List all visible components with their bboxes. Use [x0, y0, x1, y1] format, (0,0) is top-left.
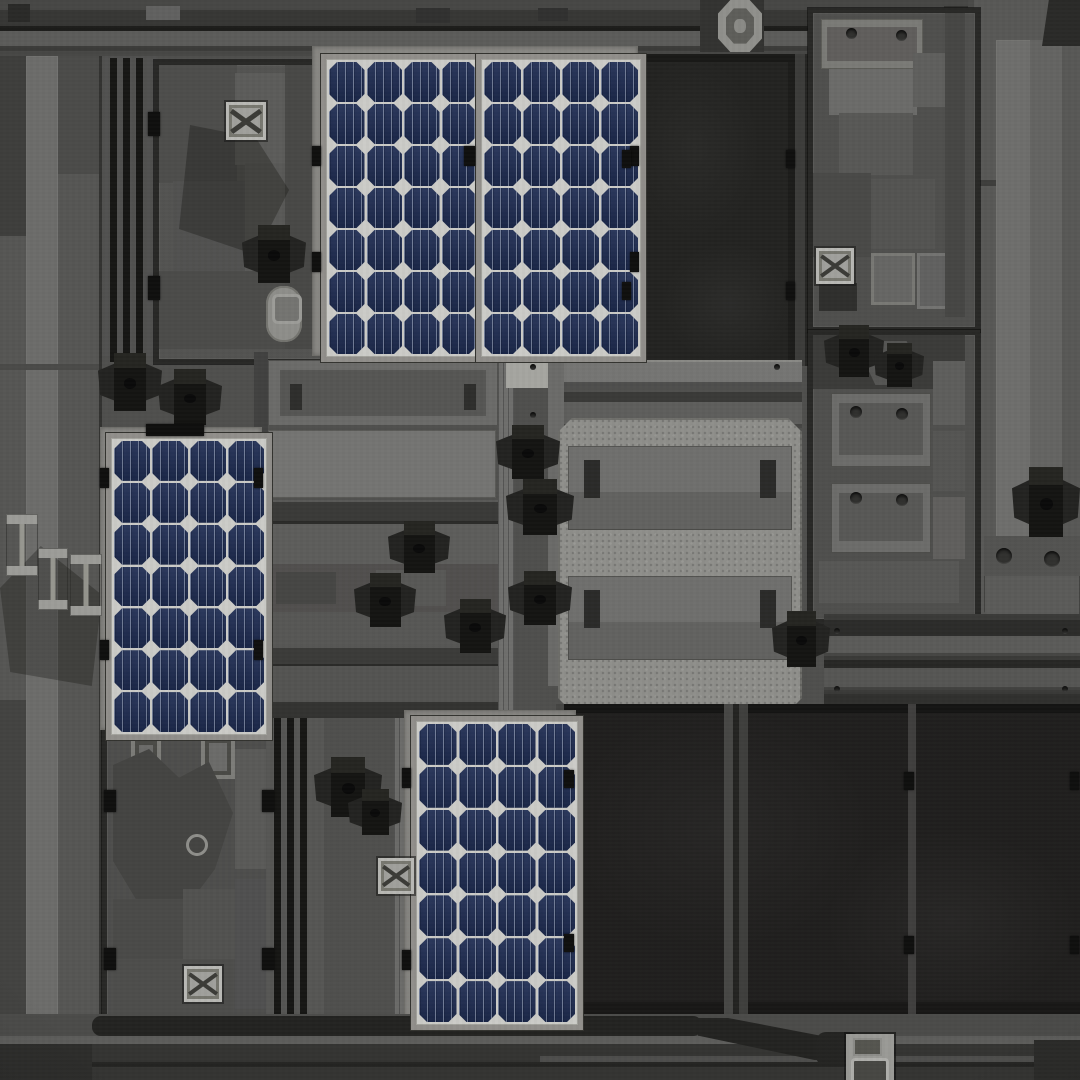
solar-cell — [601, 314, 638, 354]
machine-checker — [853, 1038, 883, 1056]
bolt — [834, 628, 840, 634]
solar-cell — [601, 272, 638, 312]
solar-cell — [190, 567, 226, 607]
machine-center — [734, 19, 746, 34]
solar-cell — [442, 62, 478, 102]
bolt — [996, 548, 1012, 564]
solar-cell — [562, 188, 599, 228]
solar-cell — [404, 230, 440, 270]
solar-cell — [459, 724, 497, 765]
solar-cell — [329, 230, 365, 270]
solar-cell — [329, 62, 365, 102]
solar-cell — [523, 314, 560, 354]
bolt — [850, 406, 862, 418]
mount-clip — [148, 276, 160, 300]
bolt — [530, 412, 536, 418]
mount-clip — [100, 468, 109, 488]
solar-cell — [498, 767, 536, 808]
vent-hole — [796, 636, 807, 646]
solar-cell — [152, 441, 188, 481]
roof-vent — [388, 520, 450, 574]
solar-cell — [562, 62, 599, 102]
roof-vent — [354, 572, 416, 628]
solar-cell — [523, 146, 560, 186]
solar-cell — [419, 724, 457, 765]
solar-cell — [228, 483, 264, 523]
solar-cell — [484, 104, 521, 144]
solar-cell — [190, 608, 226, 648]
solar-cell — [404, 272, 440, 312]
mount-clip — [564, 770, 574, 788]
solar-cell — [152, 483, 188, 523]
solar-cell — [498, 810, 536, 851]
solar-cell — [367, 314, 403, 354]
solar-cell — [442, 104, 478, 144]
solar-cell — [484, 146, 521, 186]
bolt — [1062, 686, 1068, 692]
vent-hole — [124, 378, 136, 388]
roof-vent — [506, 478, 574, 536]
machine-ring — [851, 1058, 890, 1080]
vent-hole — [268, 250, 280, 260]
solar-cell — [152, 525, 188, 565]
mount-clip — [1070, 936, 1079, 954]
solar-cell — [459, 853, 497, 894]
solar-panel-bottom-center — [411, 716, 583, 1030]
solar-cell — [538, 981, 576, 1022]
solar-cell — [114, 650, 150, 690]
bolt — [896, 30, 907, 41]
solar-cell — [419, 981, 457, 1022]
solar-cell — [329, 314, 365, 354]
solar-panel-mid-left — [106, 433, 272, 740]
mount-clip — [312, 252, 321, 272]
rooftop-texture — [0, 0, 1080, 1080]
solar-cell — [601, 188, 638, 228]
solar-cell — [442, 230, 478, 270]
mount-clip — [786, 150, 795, 168]
solar-cell — [114, 525, 150, 565]
solar-cell — [114, 483, 150, 523]
bolt — [186, 834, 208, 856]
rooftop-machine-octagon — [718, 0, 762, 52]
roof-vent — [348, 788, 402, 836]
solar-cell — [367, 272, 403, 312]
solar-cell — [498, 724, 536, 765]
solar-cell — [538, 810, 576, 851]
solar-cell — [562, 314, 599, 354]
solar-cell — [367, 188, 403, 228]
solar-cell — [114, 692, 150, 732]
mount-clip — [564, 934, 574, 952]
solar-cell — [498, 938, 536, 979]
solar-cell — [367, 104, 403, 144]
mount-clip — [622, 150, 631, 168]
solar-cell — [484, 230, 521, 270]
solar-cell — [228, 567, 264, 607]
solar-cell — [498, 981, 536, 1022]
solar-cell — [419, 810, 457, 851]
bolt — [1044, 551, 1060, 567]
solar-cell — [419, 767, 457, 808]
rooftop-machine-bottom — [846, 1034, 894, 1080]
solar-cell — [538, 895, 576, 936]
vent-hole — [895, 362, 905, 370]
roof-vent — [772, 610, 830, 668]
solar-cell — [419, 853, 457, 894]
solar-cell — [459, 895, 497, 936]
object-layer — [0, 0, 1080, 1080]
bolt — [774, 364, 780, 370]
mount-clip — [100, 640, 109, 660]
solar-cell — [523, 188, 560, 228]
roof-vent — [496, 424, 560, 480]
x-vent — [378, 858, 414, 894]
bolt — [896, 494, 908, 506]
mount-clip — [1070, 772, 1079, 790]
mount-clip — [262, 948, 274, 970]
solar-cell — [562, 104, 599, 144]
x-vent — [226, 102, 266, 140]
solar-cell — [190, 441, 226, 481]
solar-cell — [523, 104, 560, 144]
solar-cell — [538, 853, 576, 894]
solar-cell — [329, 272, 365, 312]
mount-clip — [312, 146, 321, 166]
roof-vent — [242, 224, 306, 284]
vent-hole — [849, 348, 860, 357]
solar-cell — [538, 724, 576, 765]
solar-cell — [484, 62, 521, 102]
mount-clip — [146, 424, 204, 436]
solar-cell — [404, 62, 440, 102]
solar-cell — [498, 895, 536, 936]
solar-cell — [459, 767, 497, 808]
solar-cell — [484, 314, 521, 354]
mount-clip — [402, 950, 411, 970]
solar-cell — [152, 608, 188, 648]
mount-clip — [104, 948, 116, 970]
bolt — [896, 408, 908, 420]
bolt — [850, 492, 862, 504]
solar-cell — [562, 146, 599, 186]
mount-clip — [904, 936, 914, 954]
mount-clip — [148, 112, 160, 136]
solar-cell — [329, 146, 365, 186]
mount-clip — [402, 768, 411, 788]
roof-vent — [98, 352, 162, 412]
solar-cell — [190, 692, 226, 732]
solar-cell — [459, 938, 497, 979]
solar-cell — [484, 188, 521, 228]
bolt — [834, 686, 840, 692]
solar-cell — [228, 525, 264, 565]
i-beam — [38, 548, 68, 610]
bolt — [530, 364, 536, 370]
solar-cell — [190, 650, 226, 690]
solar-cell — [562, 272, 599, 312]
solar-cell — [228, 692, 264, 732]
solar-cell — [329, 104, 365, 144]
roof-vent — [1012, 466, 1080, 538]
solar-cell — [459, 810, 497, 851]
mount-clip — [622, 282, 631, 300]
mount-clip — [262, 790, 274, 812]
i-beam — [70, 554, 102, 616]
roof-vent — [508, 570, 572, 626]
solar-cell — [419, 895, 457, 936]
solar-panel-top-right — [476, 54, 646, 362]
solar-cell — [523, 230, 560, 270]
solar-cell — [459, 981, 497, 1022]
solar-cell — [498, 853, 536, 894]
mount-clip — [786, 282, 795, 300]
mount-clip — [254, 468, 263, 488]
roof-vent — [158, 368, 222, 426]
mount-clip — [104, 790, 116, 812]
solar-cell — [601, 62, 638, 102]
bolt — [846, 28, 857, 39]
solar-cell — [367, 230, 403, 270]
solar-cell — [601, 104, 638, 144]
x-vent — [816, 248, 854, 284]
solar-cell — [442, 188, 478, 228]
vent-hole — [413, 544, 425, 553]
mount-clip — [904, 772, 914, 790]
solar-cell — [419, 938, 457, 979]
solar-cell — [114, 567, 150, 607]
i-beam — [6, 514, 38, 576]
solar-cell — [484, 272, 521, 312]
vent-hole — [1040, 498, 1053, 510]
solar-cell — [442, 272, 478, 312]
solar-cell — [190, 483, 226, 523]
solar-cell — [404, 188, 440, 228]
solar-cell — [152, 692, 188, 732]
solar-cell — [114, 608, 150, 648]
solar-cell — [523, 272, 560, 312]
solar-cell — [367, 146, 403, 186]
solar-cell — [442, 314, 478, 354]
solar-cell — [190, 525, 226, 565]
solar-cell — [152, 567, 188, 607]
roof-vent — [444, 598, 506, 654]
roof-vent — [874, 342, 924, 388]
mount-clip — [254, 640, 263, 660]
x-vent — [184, 966, 222, 1002]
solar-cell — [329, 188, 365, 228]
solar-cell — [523, 62, 560, 102]
mount-clip — [630, 252, 639, 272]
solar-panel-top-left — [321, 54, 485, 362]
mount-clip — [464, 146, 475, 166]
bolt — [1062, 628, 1068, 634]
solar-cell — [562, 230, 599, 270]
vent-hole — [534, 504, 547, 514]
mount-clip — [630, 146, 639, 166]
solar-cell — [114, 441, 150, 481]
solar-cell — [404, 104, 440, 144]
solar-cell — [152, 650, 188, 690]
solar-cell — [404, 314, 440, 354]
solar-cell — [367, 62, 403, 102]
solar-cell — [404, 146, 440, 186]
